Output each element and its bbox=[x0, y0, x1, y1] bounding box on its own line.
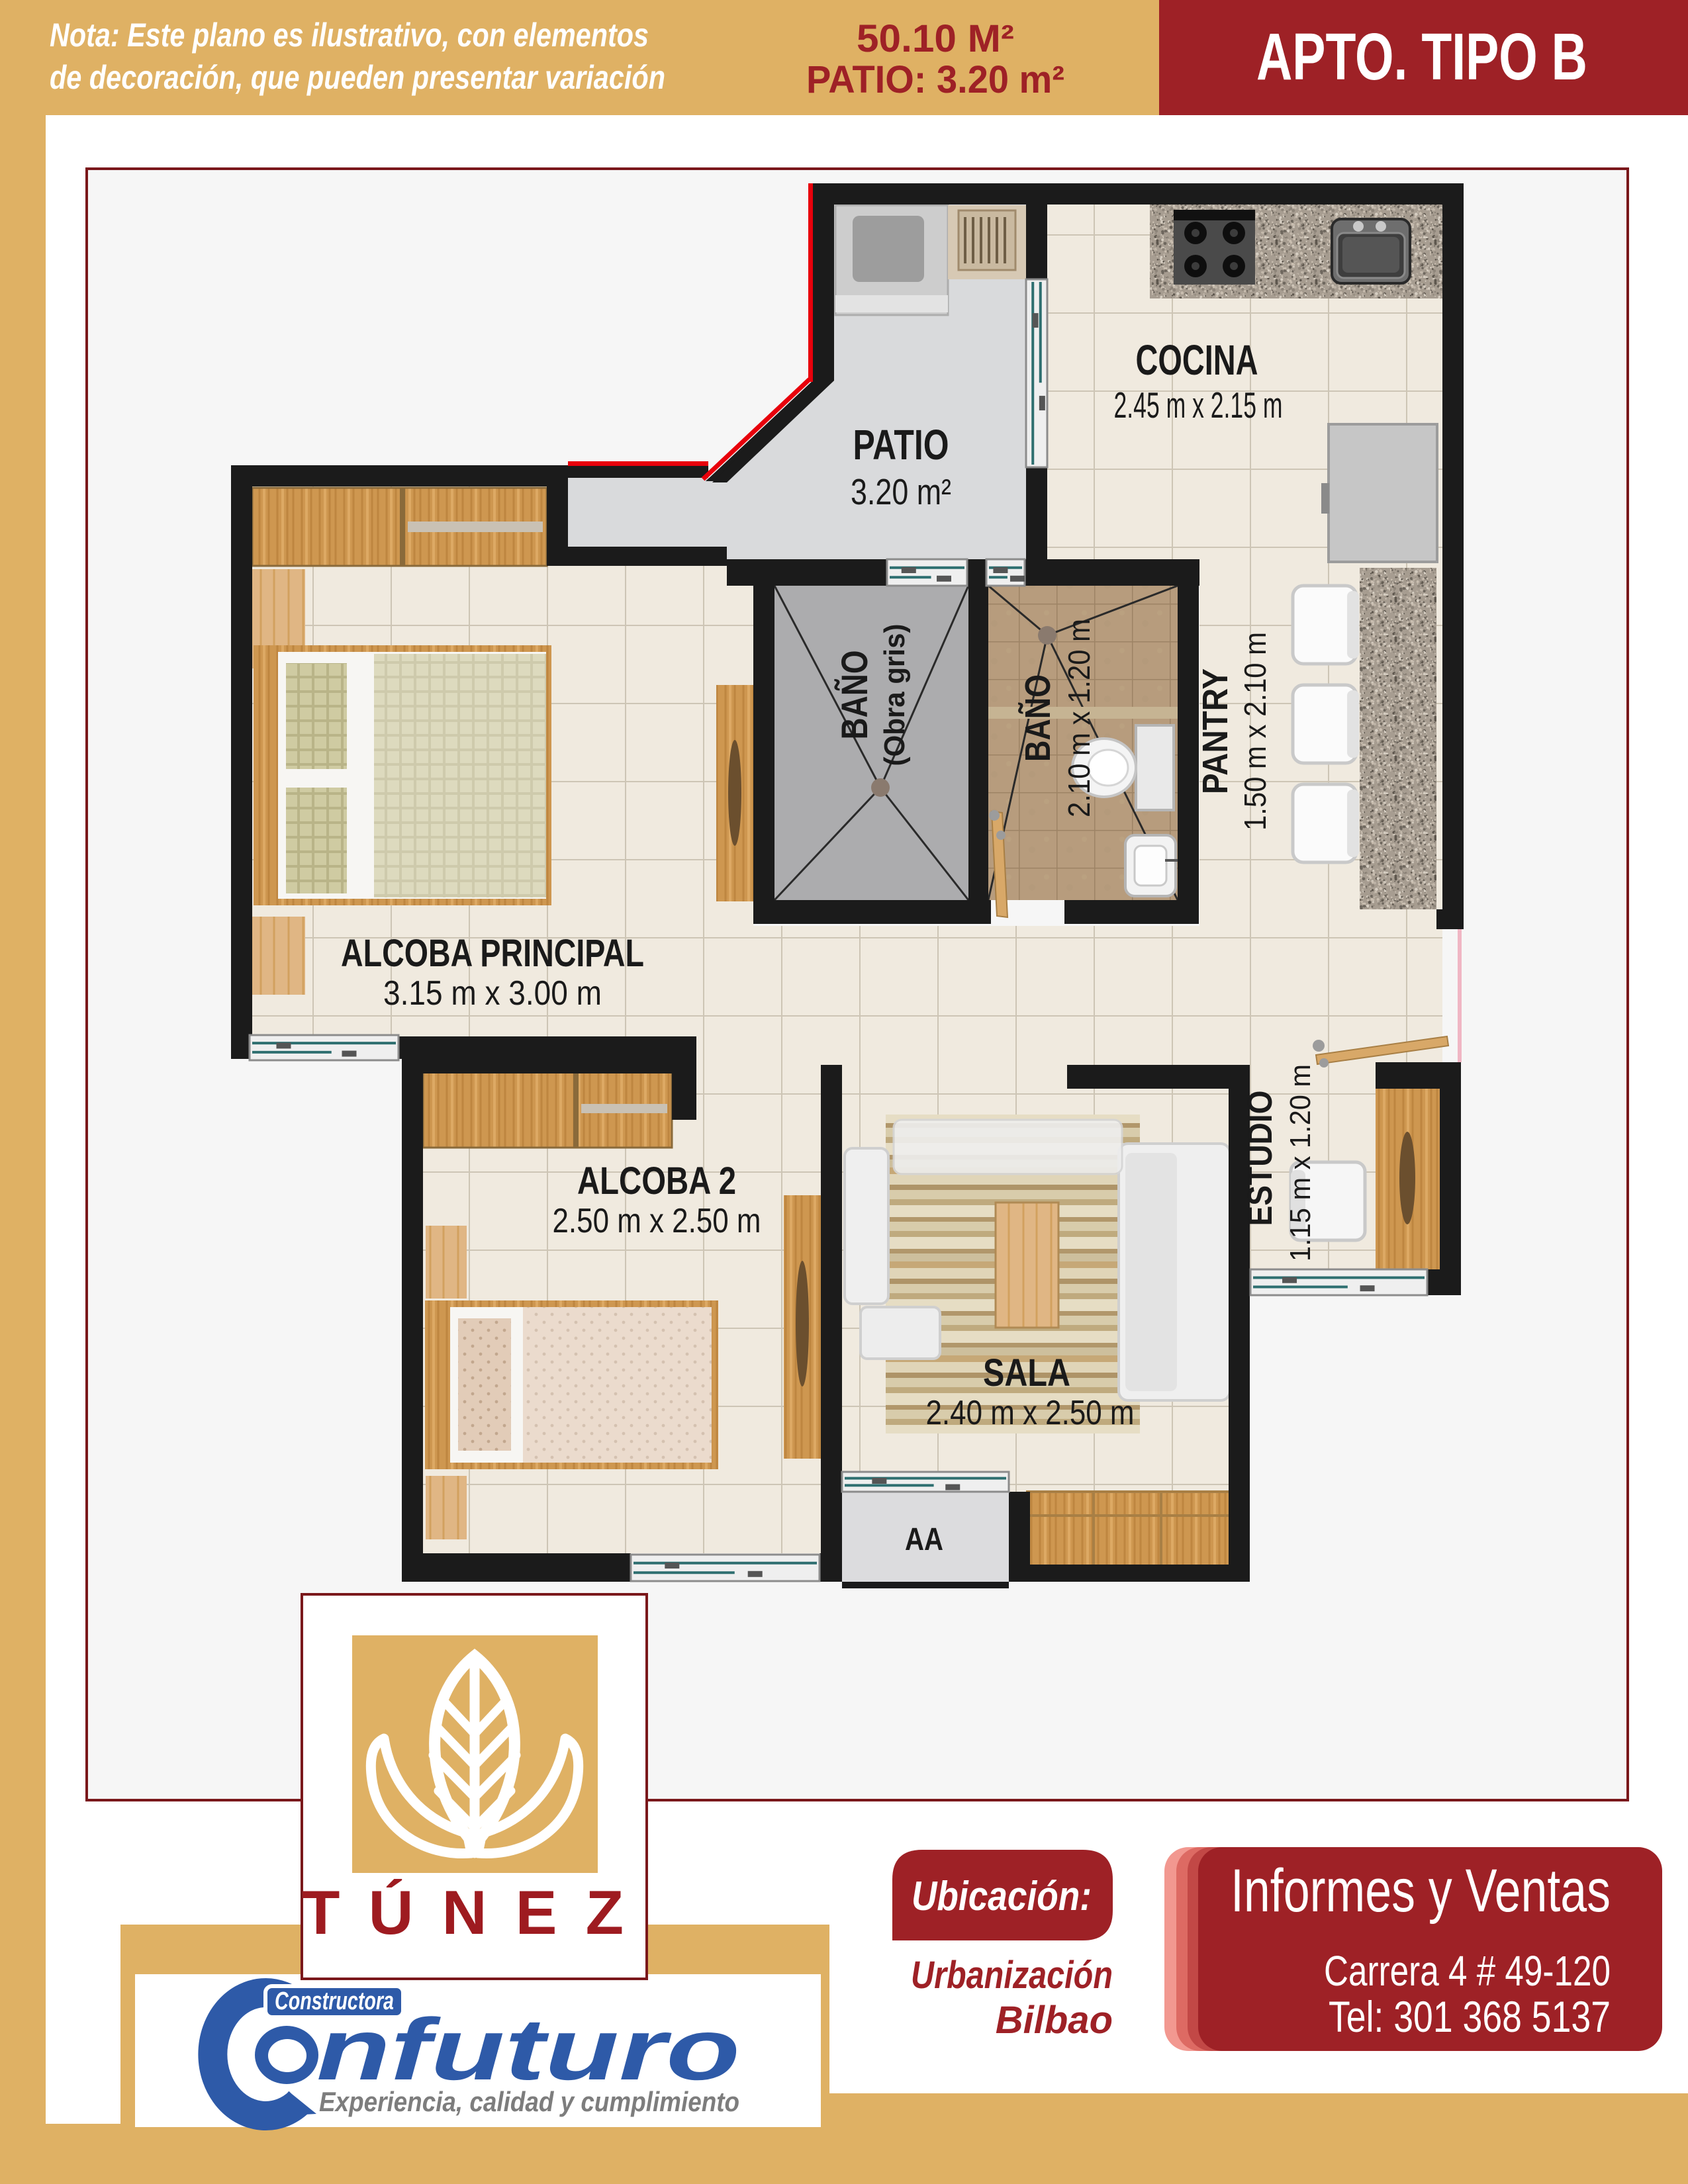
svg-text:Ubicación:: Ubicación: bbox=[912, 1874, 1092, 1919]
svg-text:2.45 m x 2.15 m: 2.45 m x 2.15 m bbox=[1114, 385, 1283, 426]
svg-text:Bilbao: Bilbao bbox=[996, 1999, 1113, 2042]
svg-text:PANTRY: PANTRY bbox=[1196, 668, 1235, 794]
svg-text:Tel: 301 368 5137: Tel: 301 368 5137 bbox=[1329, 1992, 1611, 2041]
svg-text:2.50 m x 2.50 m: 2.50 m x 2.50 m bbox=[553, 1202, 761, 1240]
svg-text:1.50 m x 2.10 m: 1.50 m x 2.10 m bbox=[1238, 632, 1272, 831]
svg-text:3.15 m x 3.00 m: 3.15 m x 3.00 m bbox=[383, 974, 602, 1013]
svg-text:2.40 m x 2.50 m: 2.40 m x 2.50 m bbox=[926, 1394, 1135, 1432]
svg-text:SALA: SALA bbox=[983, 1351, 1070, 1394]
svg-text:Urbanización: Urbanización bbox=[911, 1954, 1113, 1997]
svg-text:BAÑO: BAÑO bbox=[1018, 674, 1058, 762]
svg-text:BAÑO: BAÑO bbox=[833, 651, 875, 740]
svg-text:Nota: Este plano es ilustrativ: Nota: Este plano es ilustrativo, con ele… bbox=[50, 17, 649, 54]
svg-text:3.20 m²: 3.20 m² bbox=[851, 471, 951, 512]
svg-text:Carrera 4 # 49-120: Carrera 4 # 49-120 bbox=[1324, 1947, 1611, 1995]
svg-text:Experiencia, calidad y cumplim: Experiencia, calidad y cumplimiento bbox=[319, 2086, 739, 2117]
svg-text:ESTUDIO: ESTUDIO bbox=[1241, 1091, 1280, 1226]
svg-text:1.15 m x 1.20 m: 1.15 m x 1.20 m bbox=[1284, 1064, 1317, 1261]
svg-text:50.10 M²: 50.10 M² bbox=[857, 17, 1014, 60]
svg-text:Informes y Ventas: Informes y Ventas bbox=[1231, 1857, 1611, 1925]
svg-text:de decoración, que pueden pres: de decoración, que pueden presentar vari… bbox=[50, 59, 665, 96]
svg-text:PATIO: 3.20 m²: PATIO: 3.20 m² bbox=[806, 58, 1064, 101]
svg-text:nfuturo: nfuturo bbox=[316, 2001, 740, 2098]
svg-text:PATIO: PATIO bbox=[853, 421, 949, 469]
svg-text:(Obra gris): (Obra gris) bbox=[878, 624, 911, 766]
svg-text:COCINA: COCINA bbox=[1136, 336, 1258, 384]
svg-text:ALCOBA PRINCIPAL: ALCOBA PRINCIPAL bbox=[341, 932, 644, 975]
svg-text:AA: AA bbox=[905, 1522, 943, 1557]
svg-text:TÚNEZ: TÚNEZ bbox=[302, 1878, 646, 1947]
svg-text:ALCOBA 2: ALCOBA 2 bbox=[577, 1160, 736, 1203]
svg-text:2.10 m x 1.20 m: 2.10 m x 1.20 m bbox=[1062, 619, 1096, 817]
svg-text:APTO. TIPO B: APTO. TIPO B bbox=[1256, 20, 1587, 94]
